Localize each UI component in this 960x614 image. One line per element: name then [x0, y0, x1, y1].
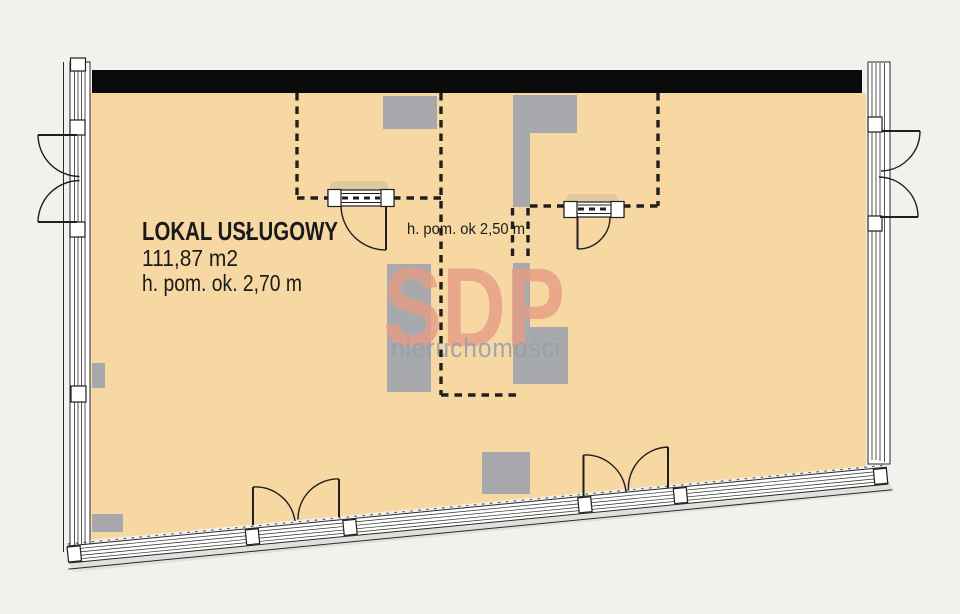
wall-jamb: [673, 487, 687, 503]
label-unit-name: LOKAL USŁUGOWY: [142, 216, 338, 246]
column-rect: [92, 514, 123, 532]
wall-jamb: [873, 468, 887, 484]
wall-jamb: [71, 58, 86, 71]
door-jamb: [564, 202, 577, 218]
column-rect: [383, 96, 437, 129]
top-wall: [92, 70, 862, 93]
door-jamb: [381, 190, 394, 207]
column-rect: [513, 133, 530, 207]
label-ceiling-height-secondary: h. pom. ok 2,50 m: [407, 221, 525, 238]
wall-jamb: [578, 497, 592, 513]
wall-jamb: [868, 117, 882, 132]
label-ceiling-height: h. pom. ok. 2,70 m: [142, 270, 302, 296]
wall-jamb: [343, 519, 357, 535]
wall-jamb: [67, 546, 81, 562]
floor-plan-svg: SDP nieruchomości: [0, 0, 960, 614]
wall-jamb: [70, 222, 85, 237]
watermark-subtitle: nieruchomości: [391, 333, 561, 363]
door-jamb: [328, 190, 341, 207]
door-jamb: [611, 202, 624, 218]
wall-jamb: [71, 386, 86, 402]
floor-plan-image: SDP nieruchomości: [0, 0, 960, 614]
wall-jamb: [70, 120, 85, 135]
wall-jamb: [245, 529, 259, 545]
label-area: 111,87 m2: [142, 245, 238, 271]
column-rect: [513, 95, 577, 133]
column-rect: [92, 363, 105, 388]
column-rect: [482, 452, 530, 494]
wall-jamb: [868, 216, 882, 231]
